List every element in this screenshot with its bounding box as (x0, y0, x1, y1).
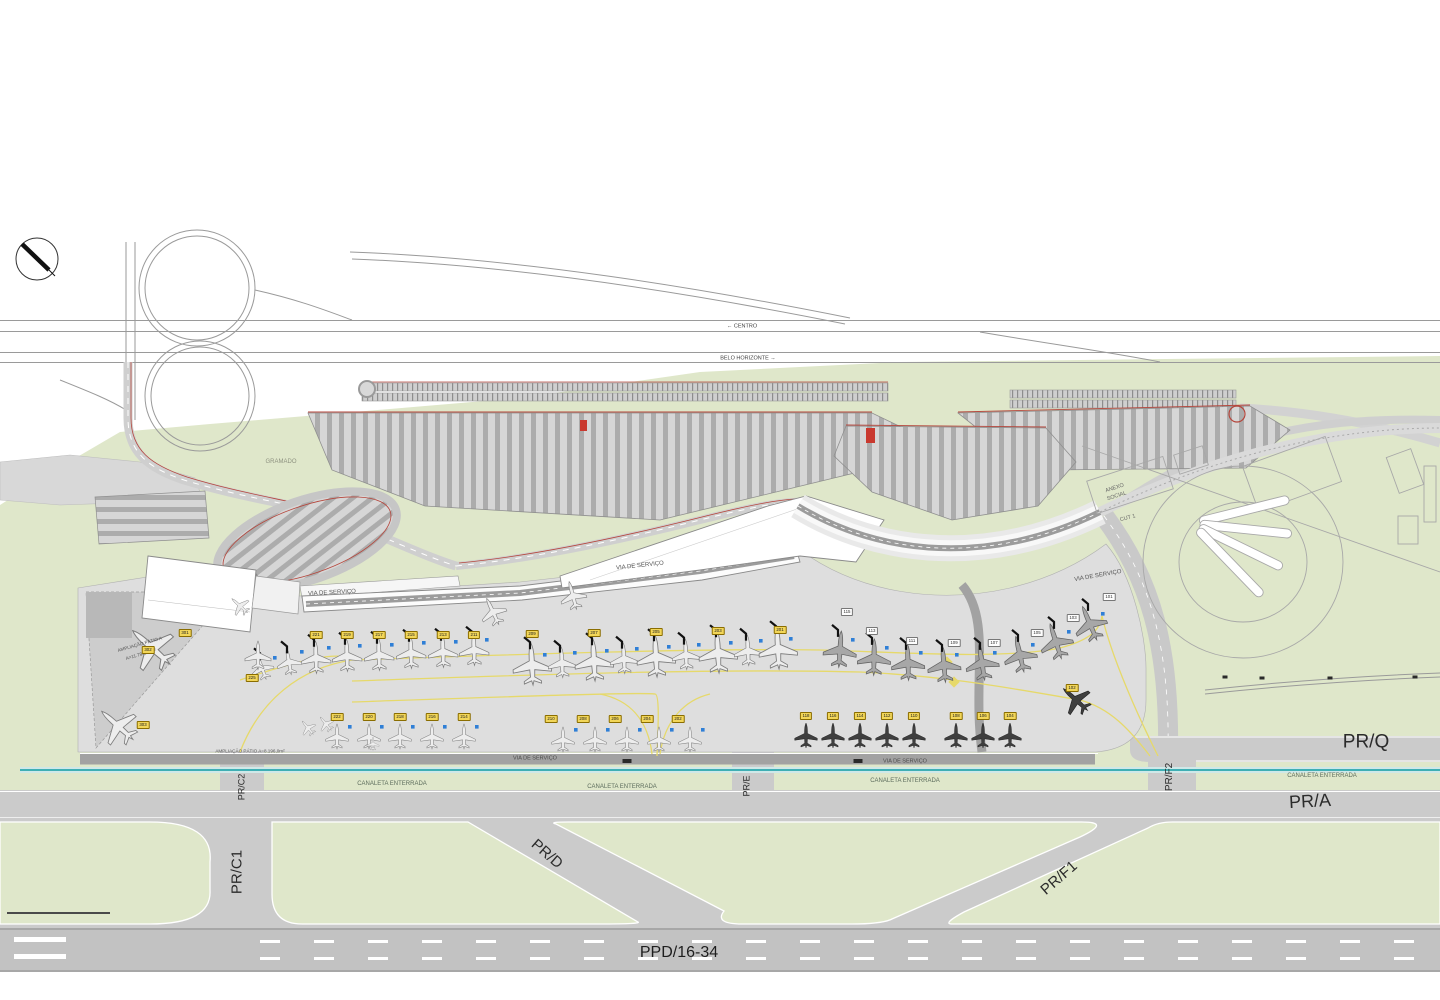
movement-area (0, 736, 1440, 972)
gse-marker (919, 651, 923, 655)
gse-marker (729, 641, 733, 645)
gse-marker (885, 646, 889, 650)
service-vehicle (854, 759, 863, 763)
gse-marker (574, 728, 578, 732)
gse-marker (638, 728, 642, 732)
compass-icon (16, 238, 58, 280)
gse-marker (422, 641, 426, 645)
gse-marker (789, 637, 793, 641)
service-vehicle (623, 759, 632, 763)
gse-marker (1031, 643, 1035, 647)
plan-drawing (0, 0, 1440, 1000)
gse-marker (380, 725, 384, 729)
gse-marker (475, 725, 479, 729)
gse-marker (573, 651, 577, 655)
gse-marker (955, 653, 959, 657)
gse-marker (667, 645, 671, 649)
gse-marker (851, 638, 855, 642)
gse-marker (605, 649, 609, 653)
gse-marker (759, 639, 763, 643)
gse-marker (454, 640, 458, 644)
gse-marker (411, 725, 415, 729)
gse-marker (993, 651, 997, 655)
gse-marker (635, 647, 639, 651)
gse-marker (300, 650, 304, 654)
gse-marker (273, 656, 277, 660)
gse-marker (697, 643, 701, 647)
service-vehicle (1413, 676, 1418, 679)
gse-marker (358, 644, 362, 648)
gse-marker (327, 646, 331, 650)
gse-marker (1101, 612, 1105, 616)
gse-marker (443, 725, 447, 729)
airport-site-plan: ← CENTROBELO HORIZONTE →GRAMADOANEXOSOCI… (0, 0, 1440, 1000)
gse-marker (701, 728, 705, 732)
service-vehicle (1260, 677, 1265, 680)
gse-marker (1067, 630, 1071, 634)
gse-marker (348, 725, 352, 729)
gse-marker (485, 638, 489, 642)
service-vehicle (1223, 676, 1228, 679)
gse-marker (606, 728, 610, 732)
gse-marker (390, 643, 394, 647)
gse-marker (670, 728, 674, 732)
service-vehicle (1328, 677, 1333, 680)
gse-marker (543, 653, 547, 657)
